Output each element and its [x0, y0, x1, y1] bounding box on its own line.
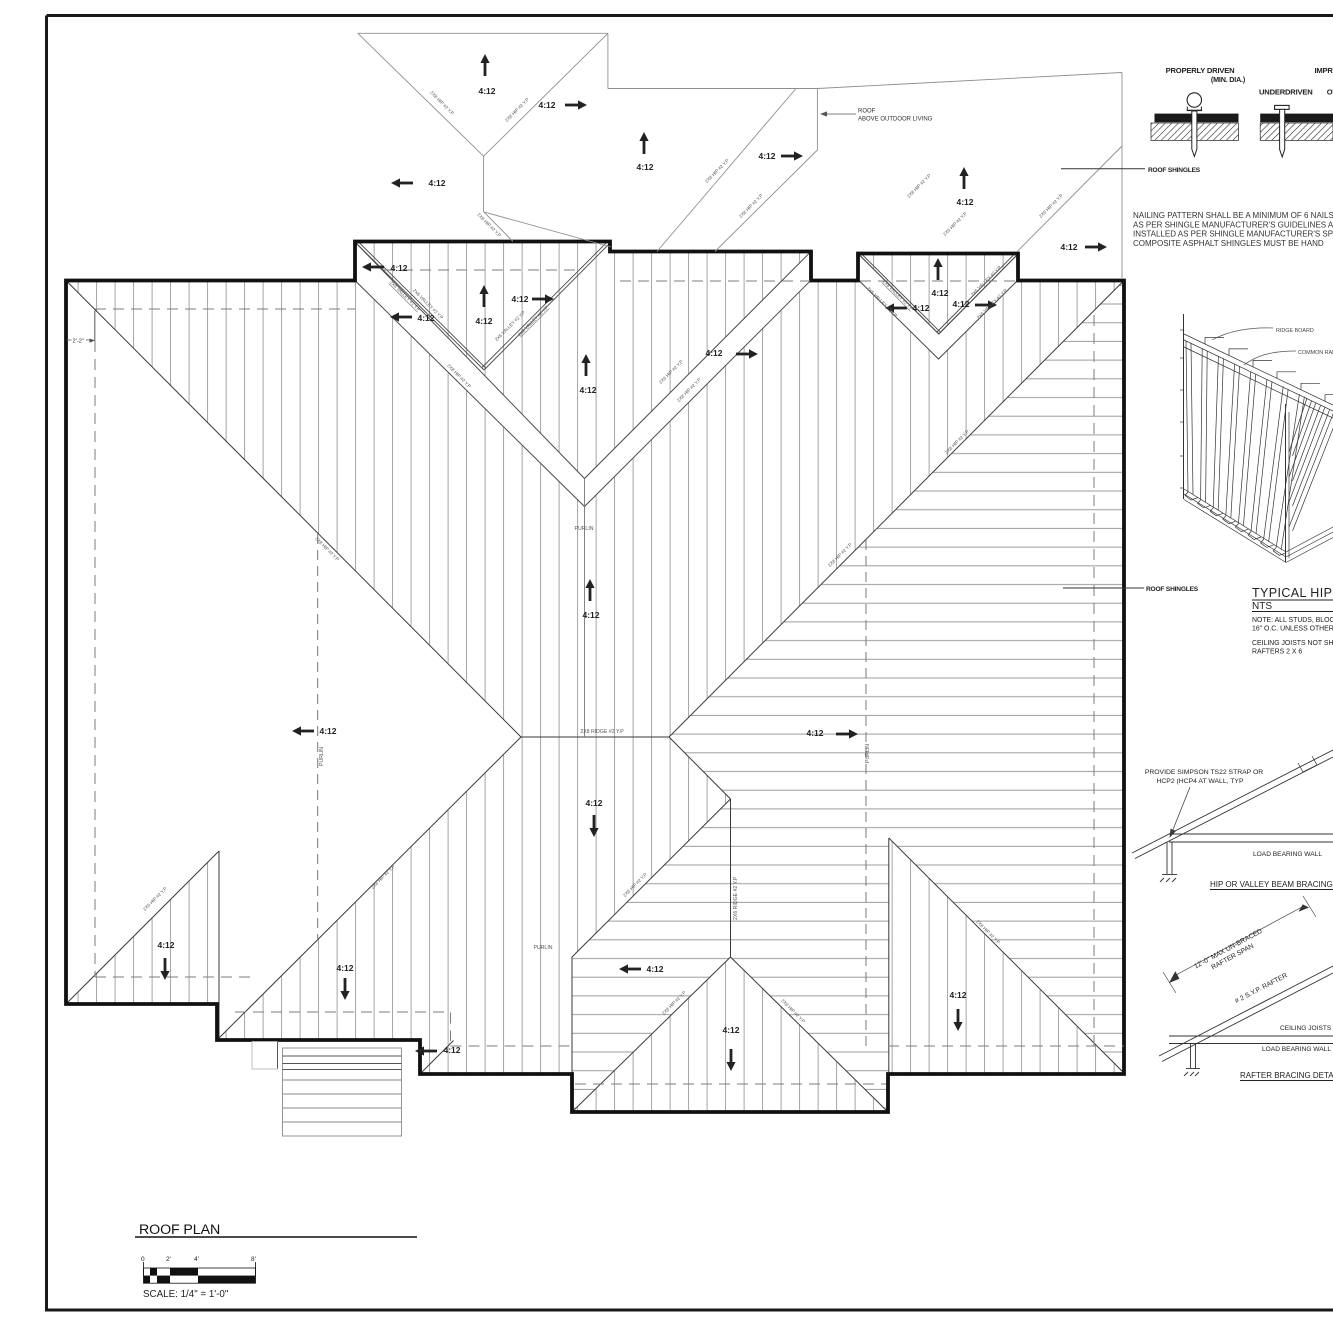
svg-text:4:12: 4:12	[428, 178, 445, 188]
svg-text:4:12: 4:12	[585, 798, 602, 808]
svg-text:HIP OR VALLEY BEAM BRACING: HIP OR VALLEY BEAM BRACING	[1210, 880, 1333, 889]
svg-text:COMPOSITE ASPHALT SHINGLES MUS: COMPOSITE ASPHALT SHINGLES MUST BE HAND	[1133, 239, 1324, 248]
svg-text:PURLIN: PURLIN	[865, 744, 871, 763]
svg-text:4:12: 4:12	[579, 385, 596, 395]
svg-text:PURLIN: PURLIN	[319, 747, 325, 766]
svg-text:4:12: 4:12	[931, 288, 948, 298]
svg-text:2X8 RIDGE #2 Y.P: 2X8 RIDGE #2 Y.P	[580, 729, 624, 735]
svg-text:LOAD BEARING WALL: LOAD BEARING WALL	[1253, 851, 1322, 858]
svg-text:4': 4'	[194, 1256, 199, 1263]
svg-text:PROVIDE SIMPSON TS22 STRAP OR: PROVIDE SIMPSON TS22 STRAP OR	[1145, 769, 1263, 776]
svg-text:SCALE: 1/4" = 1'-0": SCALE: 1/4" = 1'-0"	[143, 1289, 229, 1300]
svg-text:LOAD BEARING WALL: LOAD BEARING WALL	[1262, 1046, 1331, 1053]
svg-text:8': 8'	[251, 1256, 256, 1263]
svg-text:4:12: 4:12	[157, 940, 174, 950]
svg-text:4:12: 4:12	[511, 294, 528, 304]
svg-text:ABOVE OUTDOOR LIVING: ABOVE OUTDOOR LIVING	[858, 117, 933, 123]
svg-text:4:12: 4:12	[1060, 242, 1077, 252]
svg-text:4:12: 4:12	[646, 964, 663, 974]
svg-text:4:12: 4:12	[319, 726, 336, 736]
svg-text:4:12: 4:12	[478, 86, 495, 96]
svg-text:CEILING JOISTS NOT SHOWN: CEILING JOISTS NOT SHOWN	[1252, 640, 1333, 647]
svg-text:4:12: 4:12	[443, 1045, 460, 1055]
svg-text:16" O.C. UNLESS OTHERWISE: 16" O.C. UNLESS OTHERWISE	[1252, 626, 1333, 633]
svg-text:PURLIN: PURLIN	[574, 526, 593, 532]
svg-text:ROOF SHINGLES: ROOF SHINGLES	[1148, 167, 1201, 174]
svg-text:0: 0	[141, 1256, 145, 1263]
svg-text:4:12: 4:12	[949, 990, 966, 1000]
svg-text:4:12: 4:12	[336, 963, 353, 973]
svg-text:RAFTERS 2 X 6: RAFTERS 2 X 6	[1252, 649, 1302, 656]
svg-text:4:12: 4:12	[538, 100, 555, 110]
svg-text:4:12: 4:12	[912, 303, 929, 313]
svg-text:4:12: 4:12	[758, 151, 775, 161]
svg-text:RAFTER BRACING DETAIL: RAFTER BRACING DETAIL	[1240, 1071, 1333, 1080]
svg-text:RIDGE BOARD: RIDGE BOARD	[1276, 328, 1314, 334]
svg-text:CEILING JOISTS: CEILING JOISTS	[1280, 1025, 1332, 1032]
svg-text:INSTALLED AS PER SHINGLE MANUF: INSTALLED AS PER SHINGLE MANUFACTURER'S …	[1133, 230, 1333, 239]
svg-text:TYPICAL HIP FRAMING: TYPICAL HIP FRAMING	[1252, 586, 1333, 600]
svg-text:IMPROPERLY DRIVEN: IMPROPERLY DRIVEN	[1315, 66, 1333, 75]
svg-text:PURLIN: PURLIN	[533, 945, 552, 951]
svg-text:UNDERDRIVEN: UNDERDRIVEN	[1259, 88, 1313, 97]
svg-text:ROOF PLAN: ROOF PLAN	[139, 1222, 220, 1238]
svg-text:4:12: 4:12	[806, 728, 823, 738]
svg-text:OVERDRIVEN: OVERDRIVEN	[1327, 88, 1333, 97]
svg-text:4:12: 4:12	[705, 348, 722, 358]
svg-text:(MIN. DIA.): (MIN. DIA.)	[1211, 75, 1246, 84]
svg-text:4:12: 4:12	[636, 162, 653, 172]
svg-text:2X6 RIDGE #2 Y.P: 2X6 RIDGE #2 Y.P	[733, 876, 739, 920]
svg-text:NAILING PATTERN SHALL BE A MIN: NAILING PATTERN SHALL BE A MINIMUM OF 6 …	[1133, 211, 1333, 220]
svg-text:HCP2 (HCP4 AT WALL, TYP: HCP2 (HCP4 AT WALL, TYP	[1156, 778, 1243, 785]
svg-text:4:12: 4:12	[582, 610, 599, 620]
svg-text:ROOF SHINGLES: ROOF SHINGLES	[1146, 586, 1199, 593]
svg-text:4:12: 4:12	[417, 313, 434, 323]
svg-text:COMMON RAFTER: COMMON RAFTER	[1298, 350, 1333, 356]
svg-text:4:12: 4:12	[956, 197, 973, 207]
svg-text:2': 2'	[166, 1256, 171, 1263]
svg-text:AS PER SHINGLE MANUFACTURER'S: AS PER SHINGLE MANUFACTURER'S GUIDELINES…	[1133, 220, 1333, 229]
svg-text:4:12: 4:12	[952, 299, 969, 309]
svg-text:PROPERLY DRIVEN: PROPERLY DRIVEN	[1166, 66, 1235, 75]
svg-text:2'-2": 2'-2"	[73, 339, 85, 345]
svg-text:NTS: NTS	[1252, 601, 1272, 612]
svg-text:ROOF: ROOF	[858, 109, 876, 115]
svg-text:4:12: 4:12	[475, 316, 492, 326]
svg-text:NOTE: ALL STUDS, BLOCKING: NOTE: ALL STUDS, BLOCKING	[1252, 617, 1333, 624]
svg-text:4:12: 4:12	[722, 1025, 739, 1035]
svg-text:4:12: 4:12	[390, 263, 407, 273]
